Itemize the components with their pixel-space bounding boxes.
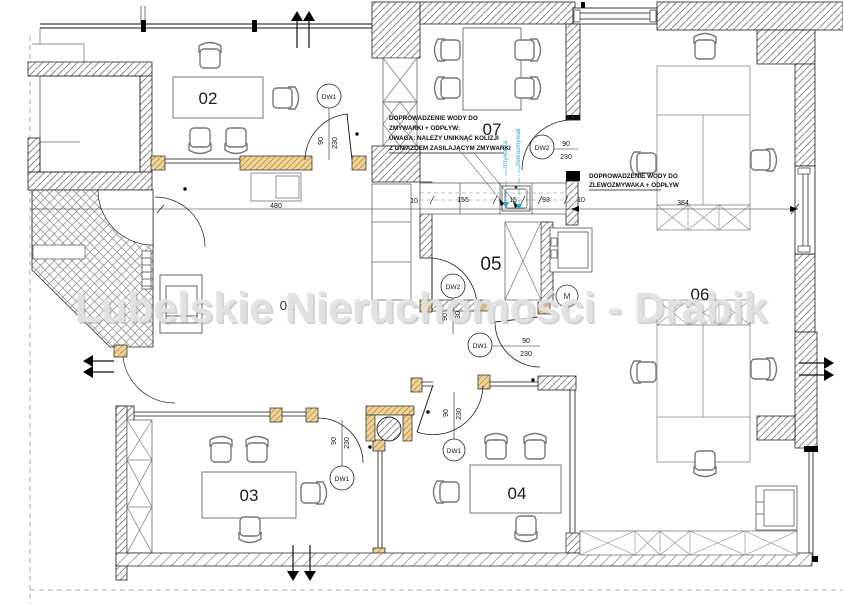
sink-label: zlewozmywak	[515, 127, 522, 167]
chair-icon	[751, 358, 777, 380]
door-width: 90	[562, 141, 570, 148]
room07-right-wall	[566, 24, 580, 225]
room03-furniture	[202, 437, 327, 543]
table	[173, 77, 263, 118]
door-height: 230	[344, 437, 351, 449]
chair-icon	[210, 437, 232, 463]
door-tag: DW2	[535, 145, 550, 152]
room03-wardrobe	[127, 420, 152, 553]
chair-icon	[434, 481, 460, 503]
staircase-block	[28, 6, 152, 190]
note-line: ZLEWOZMYWAKA + ODPŁYW	[589, 182, 679, 189]
hall-cabinet	[372, 184, 411, 300]
floor-plan-drawing: M	[0, 0, 843, 604]
chair-icon	[524, 434, 546, 460]
room-label-03: 03	[240, 486, 259, 505]
chair-icon	[515, 77, 541, 99]
note-line: DOPROWADZENIE WODY DO	[589, 173, 678, 180]
watermark-text: Lubelskie Nieruchomości - Drabik	[75, 284, 768, 332]
door-room03: DW1 90 230	[318, 418, 363, 490]
chair-icon	[301, 482, 327, 504]
room02-furniture	[173, 43, 299, 154]
right-window	[795, 166, 815, 254]
dim-desk: 480	[270, 203, 282, 210]
chair-icon	[225, 128, 247, 154]
chair-icon	[631, 361, 657, 383]
note-line: Z GNIAZDEM ZASILAJĄCYM ZMYWARKI	[389, 145, 511, 152]
room06-furniture	[631, 34, 777, 477]
top-window	[573, 8, 657, 24]
door-width: 90	[331, 437, 338, 445]
corridor-top-wall	[151, 156, 366, 170]
shaft-column	[372, 2, 420, 182]
table	[463, 28, 521, 110]
chair-icon	[199, 43, 221, 69]
dim-10-right: 10	[577, 197, 585, 204]
door-width: 90	[522, 338, 530, 345]
entrance-landing	[33, 245, 85, 259]
room06-bottom-cabinets	[580, 531, 797, 555]
chair-icon	[515, 516, 537, 542]
note-line: DOPROWADZENIE WODY DO	[389, 115, 478, 122]
door-room02: DW1 90 230	[305, 84, 359, 160]
dim-384: 384	[677, 200, 689, 207]
door-room07: DW2 90 230	[522, 120, 578, 170]
note-line: ZMYWARKI + ODPŁYW:	[389, 125, 460, 132]
watermark: Lubelskie Nieruchomości - Drabik Lubelsk…	[75, 284, 770, 334]
chair-icon	[246, 437, 268, 463]
dishwasher-label: zmywarka	[502, 140, 509, 169]
chair-icon	[631, 152, 657, 174]
room-label-04: 04	[508, 484, 527, 503]
chair-icon	[435, 77, 461, 99]
room-label-02: 02	[199, 89, 218, 108]
door-tag: DW1	[473, 343, 488, 350]
room03-04-divider	[373, 440, 385, 559]
door-room04: DW1 90 230	[417, 385, 483, 461]
door-width: 90	[443, 409, 450, 417]
dim-10-left: 10	[410, 198, 418, 205]
blue-labels: zmywarka zlewozmywak	[502, 127, 522, 169]
door-tag: DW1	[335, 476, 350, 483]
boiler-alcove	[366, 406, 414, 441]
chair-icon	[694, 34, 716, 60]
chair-icon	[435, 39, 461, 61]
door-height: 230	[332, 137, 339, 149]
dim-93: 93	[542, 197, 550, 204]
hall-desk	[251, 173, 301, 201]
door-height: 230	[520, 351, 532, 358]
printer-icon	[756, 486, 797, 530]
dim-15: 15	[509, 197, 517, 204]
door-height: 230	[456, 408, 463, 420]
door-height: 230	[560, 154, 572, 161]
sink-note: DOPROWADZENIE WODY DO ZLEWOZMYWAKA + ODP…	[589, 173, 679, 190]
room04-walls	[411, 375, 580, 553]
room-label-05: 05	[480, 254, 501, 275]
door-width: 90	[318, 137, 325, 145]
top-window-wall	[40, 20, 372, 32]
chair-icon	[485, 434, 507, 460]
dim-155: 155	[457, 197, 469, 204]
chair-icon	[273, 87, 299, 109]
chair-icon	[751, 149, 777, 171]
floor-plan-canvas: M	[0, 0, 843, 604]
chair-icon	[515, 39, 541, 61]
door-tag: DW1	[447, 448, 462, 455]
note-line: UWAGA: NALEŻY UNIKNĄĆ KOLIZJI	[389, 133, 499, 142]
oven-icon	[550, 228, 592, 272]
chair-icon	[694, 451, 716, 477]
door-tag: DW1	[322, 94, 337, 101]
chair-icon	[189, 128, 211, 154]
room07-furniture	[435, 28, 541, 110]
chair-icon	[239, 517, 261, 543]
boiler-icon	[377, 417, 401, 441]
